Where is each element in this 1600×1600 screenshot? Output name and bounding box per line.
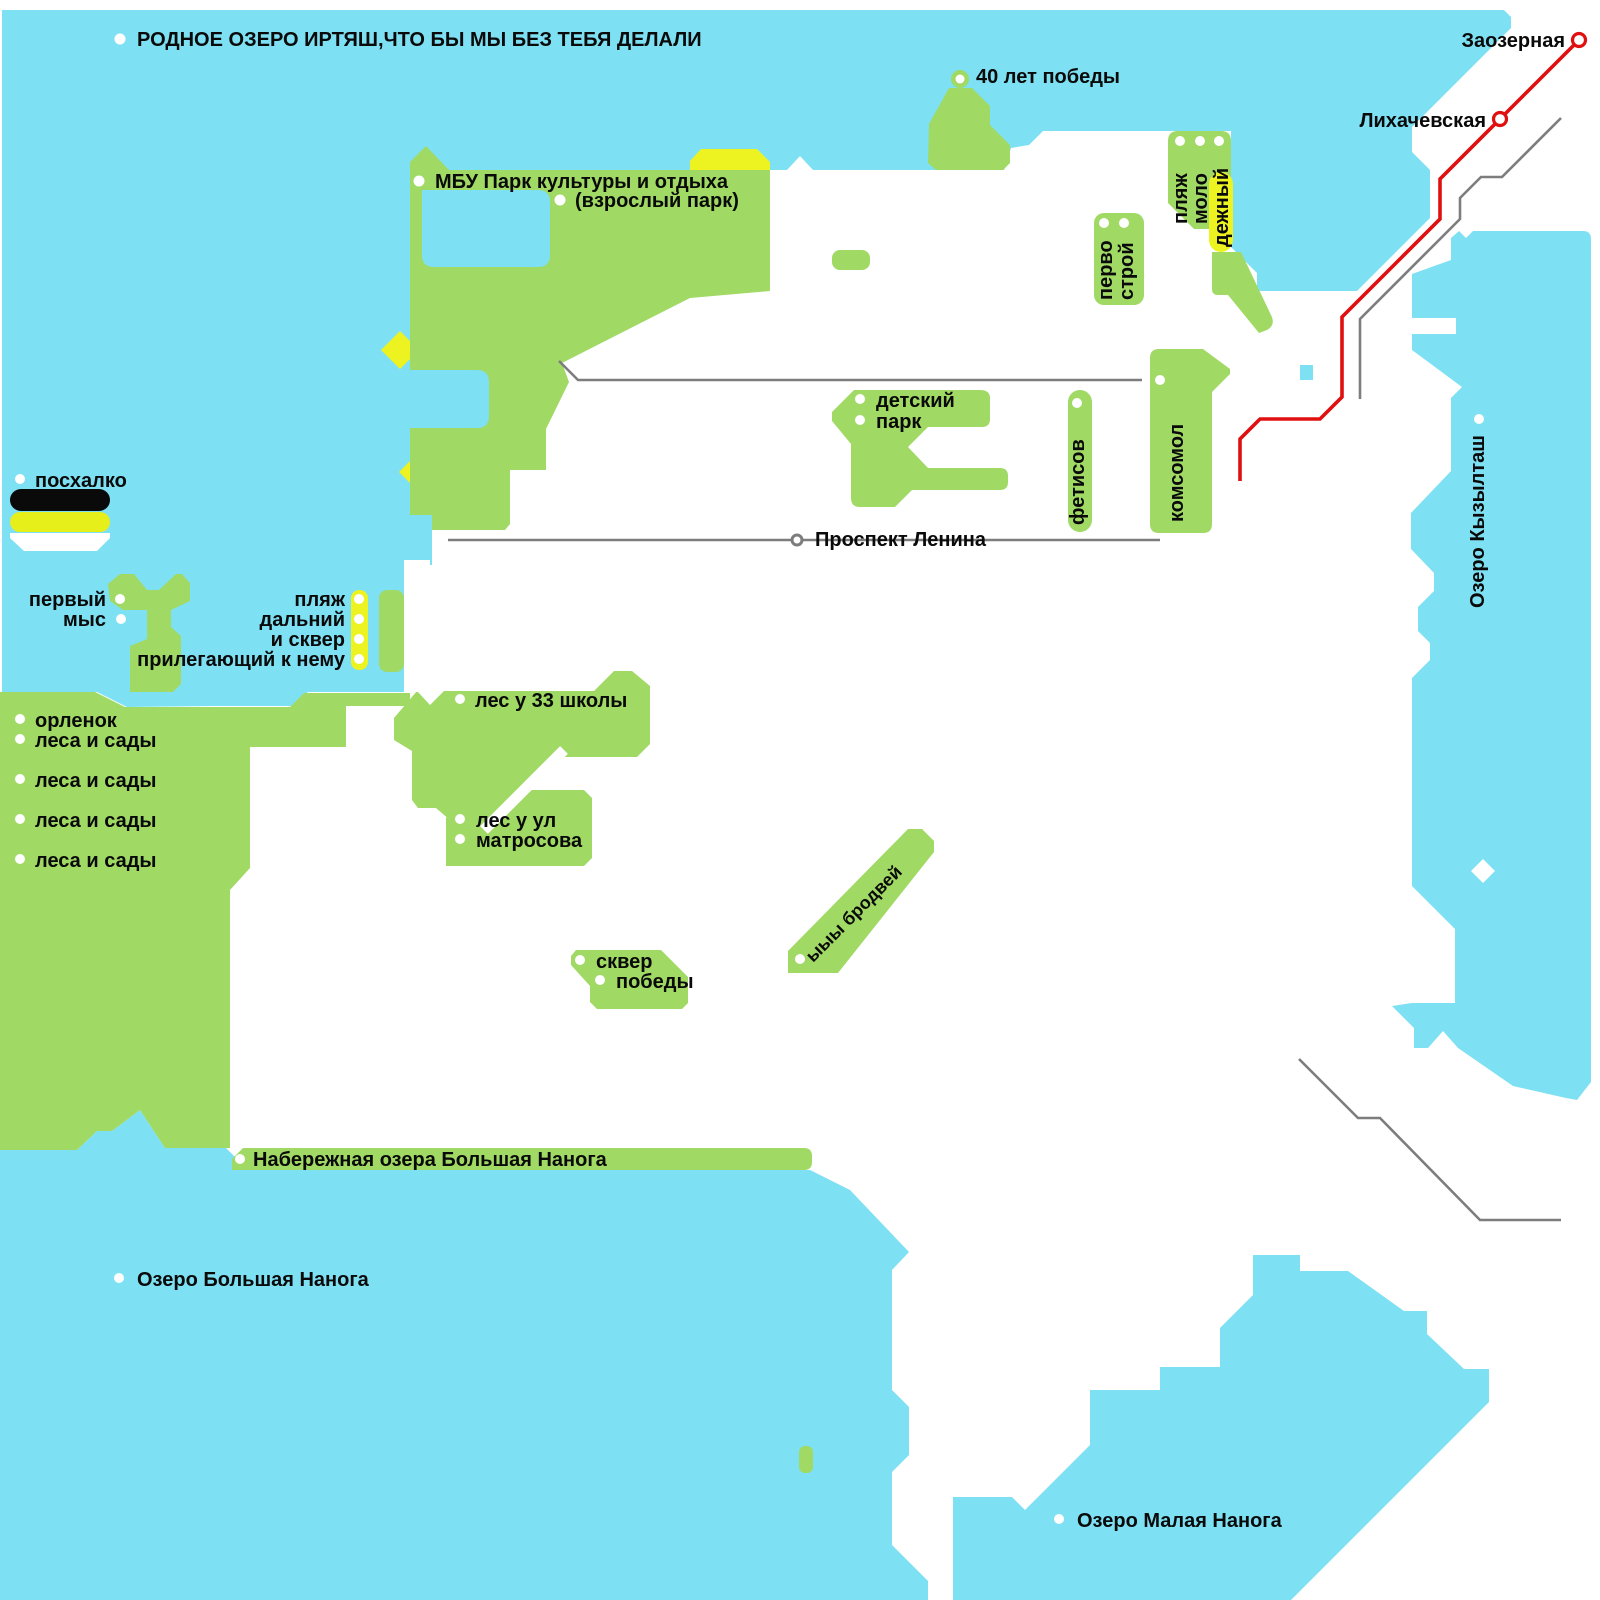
- svg-text:(взрослый парк): (взрослый парк): [575, 190, 739, 212]
- svg-text:матросова: матросова: [476, 830, 583, 852]
- svg-text:победы: победы: [616, 971, 694, 993]
- svg-text:и сквер: и сквер: [271, 629, 345, 651]
- svg-text:Озеро Малая Нанога: Озеро Малая Нанога: [1077, 1510, 1283, 1532]
- svg-text:дежный: дежный: [1211, 168, 1233, 247]
- svg-text:комсомол: комсомол: [1166, 424, 1188, 522]
- svg-text:Лихачевская: Лихачевская: [1359, 110, 1486, 132]
- svg-text:леса и сады: леса и сады: [35, 730, 156, 752]
- svg-text:40 лет победы: 40 лет победы: [976, 66, 1120, 88]
- svg-text:Набережная озера Большая Наног: Набережная озера Большая Нанога: [253, 1149, 608, 1171]
- svg-text:Озеро Кызылташ: Озеро Кызылташ: [1467, 435, 1489, 608]
- svg-text:перво: перво: [1095, 240, 1117, 300]
- svg-text:Проспект Ленина: Проспект Ленина: [815, 529, 987, 551]
- svg-text:прилегающий к нему: прилегающий к нему: [137, 649, 346, 671]
- svg-text:леса и сады: леса и сады: [35, 770, 156, 792]
- svg-text:фетисов: фетисов: [1067, 439, 1089, 525]
- svg-text:РОДНОЕ ОЗЕРО ИРТЯШ,ЧТО БЫ МЫ Б: РОДНОЕ ОЗЕРО ИРТЯШ,ЧТО БЫ МЫ БЕЗ ТЕБЯ ДЕ…: [137, 29, 702, 51]
- svg-text:детский: детский: [876, 390, 955, 412]
- svg-text:пляж: пляж: [294, 589, 345, 611]
- svg-text:сквер: сквер: [596, 951, 653, 973]
- svg-text:моло: моло: [1190, 173, 1212, 224]
- svg-text:леса и сады: леса и сады: [35, 810, 156, 832]
- svg-text:парк: парк: [876, 411, 922, 433]
- svg-text:лес у 33 школы: лес у 33 школы: [475, 690, 627, 712]
- svg-text:Озеро Большая Нанога: Озеро Большая Нанога: [137, 1269, 370, 1291]
- svg-text:орленок: орленок: [35, 710, 118, 732]
- svg-text:посхалко: посхалко: [35, 470, 127, 492]
- svg-text:пляж: пляж: [1170, 173, 1192, 224]
- svg-text:первый: первый: [29, 589, 106, 611]
- svg-text:дальний: дальний: [260, 609, 346, 631]
- svg-text:мыс: мыс: [63, 609, 106, 631]
- svg-text:строй: строй: [1116, 242, 1138, 300]
- svg-text:леса и сады: леса и сады: [35, 850, 156, 872]
- svg-text:Заозерная: Заозерная: [1462, 30, 1566, 52]
- svg-text:лес у ул: лес у ул: [476, 810, 556, 832]
